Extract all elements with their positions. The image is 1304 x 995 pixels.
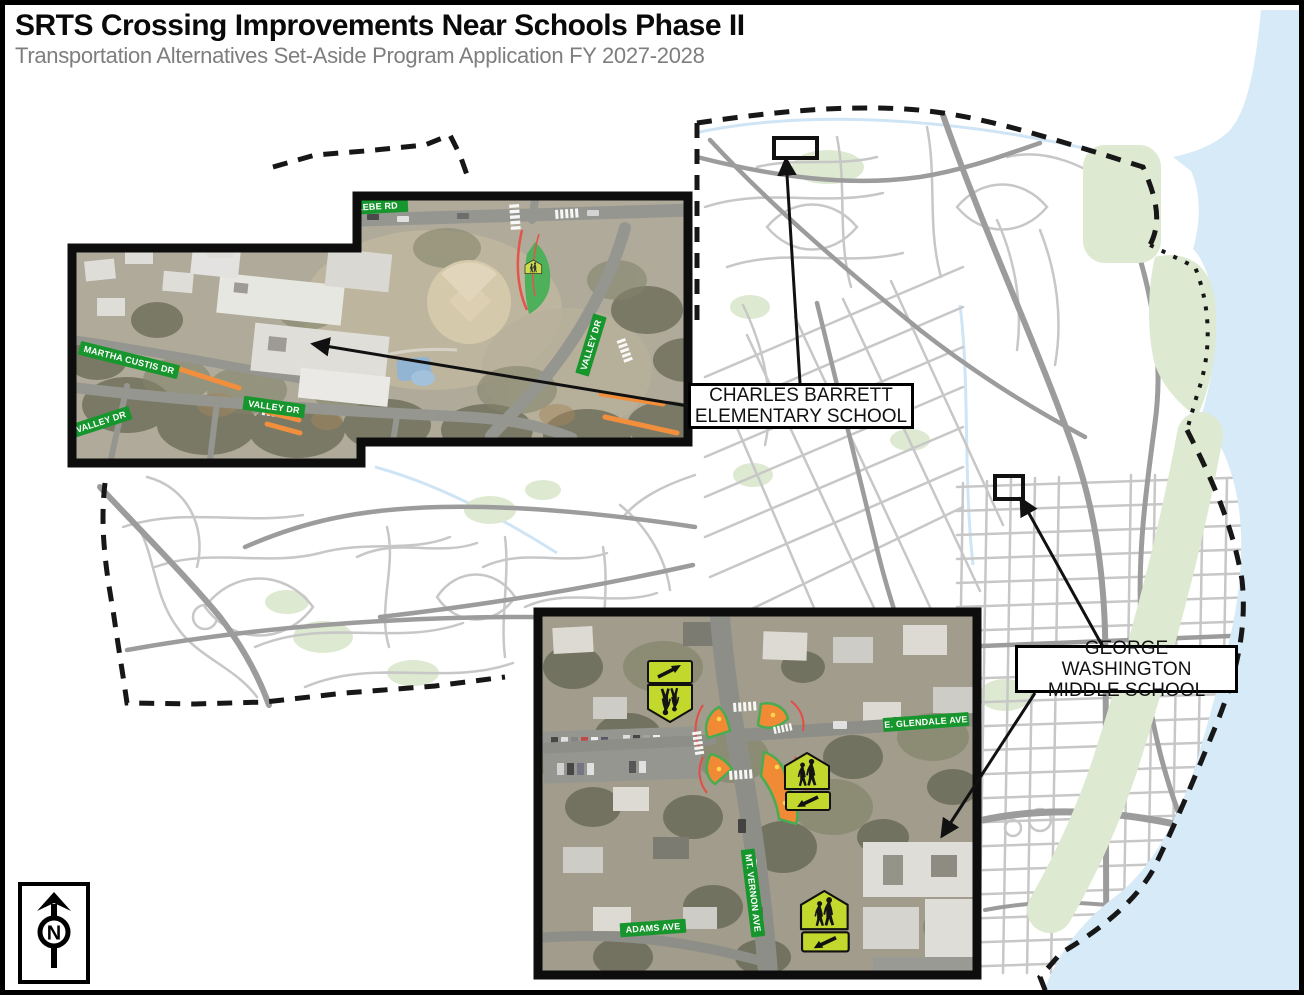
callout-washington-line1: GEORGE WASHINGTON	[1018, 638, 1235, 680]
callout-barrett-line1: CHARLES BARRETT	[709, 385, 893, 406]
page-title: SRTS Crossing Improvements Near Schools …	[15, 9, 745, 43]
inset-barrett-aerial: W. GLEBE RD VALLEY DR MARTHA CUSTIS DR V…	[67, 190, 707, 480]
callout-barrett-line2: ELEMENTARY SCHOOL	[695, 406, 907, 427]
inset-washington-aerial: E. GLENDALE AVE MT. VERNON AVE ADAMS AVE	[533, 607, 982, 980]
school-marker-washington	[995, 476, 1023, 499]
header: SRTS Crossing Improvements Near Schools …	[15, 9, 745, 69]
page-subtitle: Transportation Alternatives Set-Aside Pr…	[15, 43, 745, 69]
school-sign-assembly-north	[648, 661, 692, 722]
callout-washington-line2: MIDDLE SCHOOL	[1048, 680, 1205, 701]
north-arrow-label: N	[47, 923, 61, 945]
callout-washington-school: GEORGE WASHINGTON MIDDLE SCHOOL	[1015, 645, 1238, 693]
north-arrow: N	[18, 882, 90, 984]
north-arrow-icon: N	[26, 890, 82, 976]
map-page: W. GLEBE RD VALLEY DR MARTHA CUSTIS DR V…	[0, 0, 1304, 995]
callout-barrett-school: CHARLES BARRETT ELEMENTARY SCHOOL	[688, 383, 914, 429]
school-sign-assembly-south	[801, 891, 849, 951]
school-sign-assembly-middle	[785, 753, 830, 810]
